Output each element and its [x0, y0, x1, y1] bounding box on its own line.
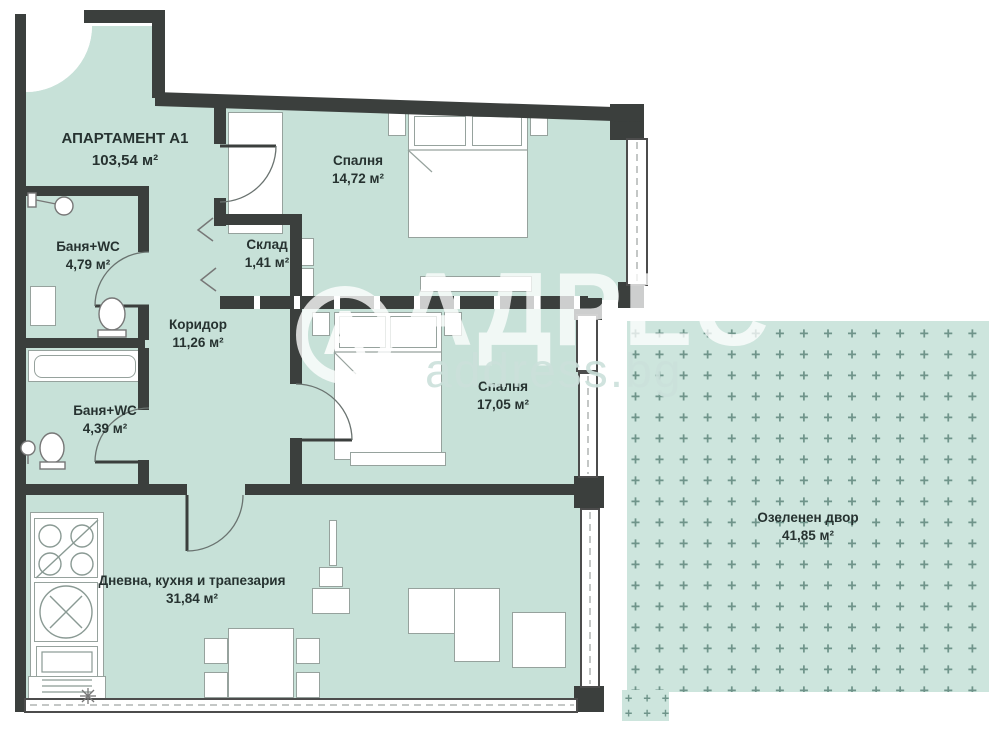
- appliance-detail: [42, 652, 92, 692]
- lamp-icon: [80, 688, 96, 704]
- room-area: 4,39 м²: [45, 420, 165, 438]
- room-name: Баня+WC: [45, 402, 165, 420]
- room-area: 11,26 м²: [138, 334, 258, 352]
- wall-diagonal: [155, 92, 644, 122]
- room-label-bath1: Баня+WC 4,79 м²: [28, 238, 148, 274]
- apartment-title: АПАРТАМЕНТ А1 103,54 м²: [40, 128, 210, 172]
- room-name: Коридор: [138, 316, 258, 334]
- room-name: Склад: [212, 236, 322, 254]
- room-name: Дневна, кухня и трапезария: [82, 572, 302, 590]
- watermark-site: address.bg: [425, 348, 683, 396]
- room-area: 14,72 м²: [288, 170, 428, 188]
- watermark-logo: А: [296, 286, 394, 384]
- entry-curve: [26, 26, 92, 92]
- room-label-living: Дневна, кухня и трапезария 31,84 м²: [82, 572, 302, 608]
- room-area: 4,79 м²: [28, 256, 148, 274]
- room-label-bath2: Баня+WC 4,39 м²: [45, 402, 165, 438]
- apartment-name: АПАРТАМЕНТ А1: [40, 128, 210, 150]
- room-name: Спалня: [288, 152, 428, 170]
- watermark-logo-letter: А: [308, 298, 382, 370]
- apartment-area: 103,54 м²: [40, 150, 210, 172]
- room-area: 31,84 м²: [82, 590, 302, 608]
- cooktop-burners: [36, 520, 98, 578]
- room-area: 17,05 м²: [433, 396, 573, 414]
- room-label-corridor: Коридор 11,26 м²: [138, 316, 258, 352]
- room-label-storage: Склад 1,41 м²: [212, 236, 322, 272]
- room-area: 1,41 м²: [212, 254, 322, 272]
- room-label-bedroom1: Спалня 14,72 м²: [288, 152, 428, 188]
- room-name: Баня+WC: [28, 238, 148, 256]
- floor-plan: АПАРТАМЕНТ А1 103,54 м² Спалня 14,72 м² …: [0, 0, 1000, 742]
- toilet-icon: [40, 298, 126, 469]
